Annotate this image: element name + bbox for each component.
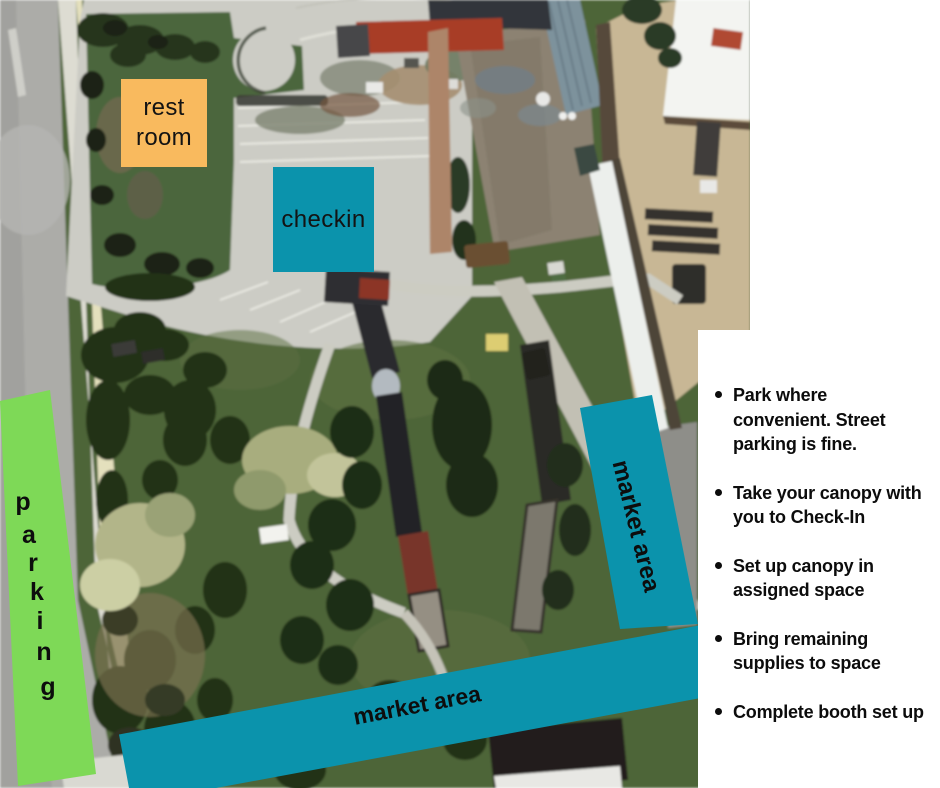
svg-text:k: k bbox=[30, 578, 44, 606]
svg-text:r: r bbox=[28, 549, 38, 577]
svg-text:a: a bbox=[22, 521, 37, 549]
svg-text:p: p bbox=[15, 488, 30, 516]
svg-text:i: i bbox=[37, 607, 44, 635]
svg-text:n: n bbox=[36, 638, 51, 666]
svg-text:g: g bbox=[40, 673, 55, 701]
